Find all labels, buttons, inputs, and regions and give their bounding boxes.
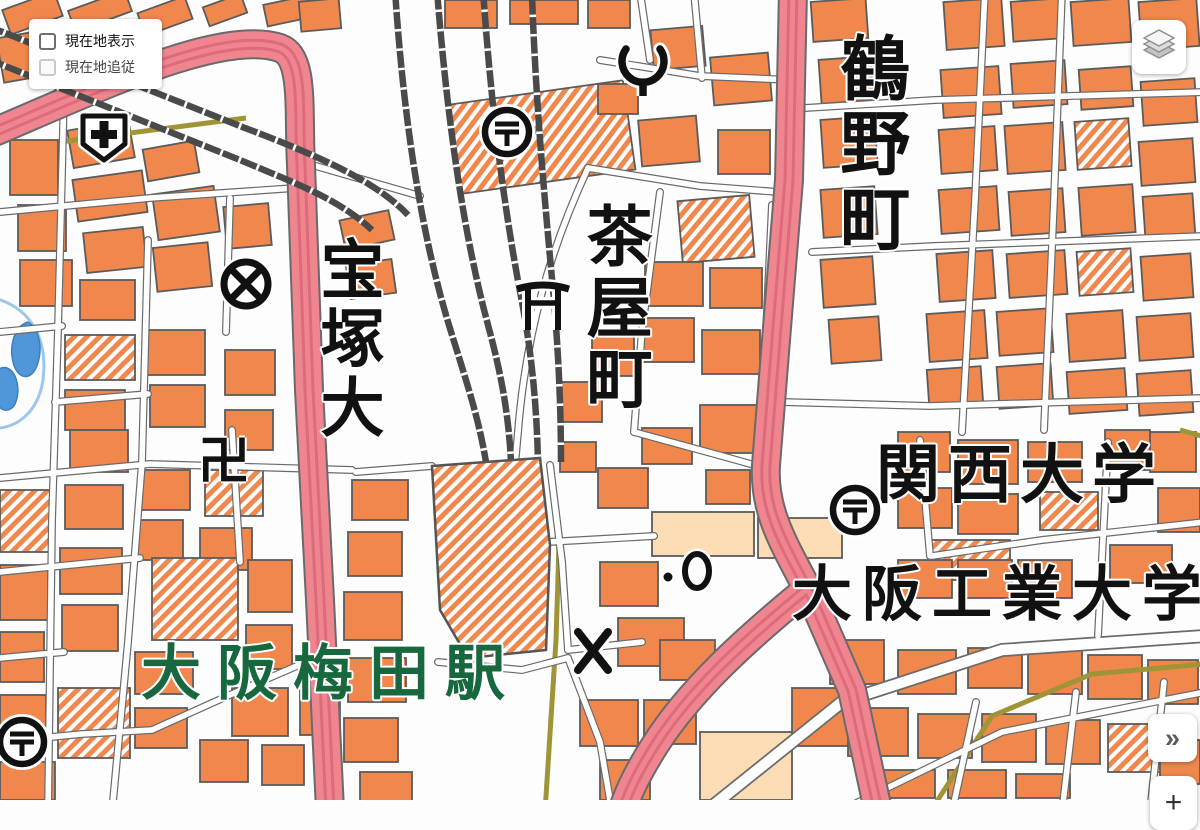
layers-button[interactable] bbox=[1132, 20, 1186, 74]
plus-icon: + bbox=[1165, 786, 1183, 820]
location-panel: 現在地表示 現在地追従 bbox=[29, 19, 162, 89]
map-canvas[interactable]: 宝塚大 茶屋町 鶴野町 関西大学 大阪工業大学 大阪梅田駅 bbox=[0, 0, 1200, 800]
show-current-location-row: 現在地表示 bbox=[39, 28, 152, 54]
map-base-layer bbox=[0, 0, 1200, 800]
layers-icon bbox=[1141, 28, 1177, 67]
zoom-in-button[interactable]: + bbox=[1150, 776, 1197, 830]
follow-current-location-checkbox[interactable] bbox=[39, 59, 56, 76]
double-chevron-right-icon: » bbox=[1165, 723, 1180, 754]
show-current-location-label: 現在地表示 bbox=[65, 31, 135, 51]
collapse-sidebar-button[interactable]: » bbox=[1148, 714, 1197, 762]
show-current-location-checkbox[interactable] bbox=[39, 33, 56, 50]
follow-current-location-label: 現在地追従 bbox=[65, 57, 135, 77]
follow-current-location-row: 現在地追従 bbox=[39, 54, 152, 80]
